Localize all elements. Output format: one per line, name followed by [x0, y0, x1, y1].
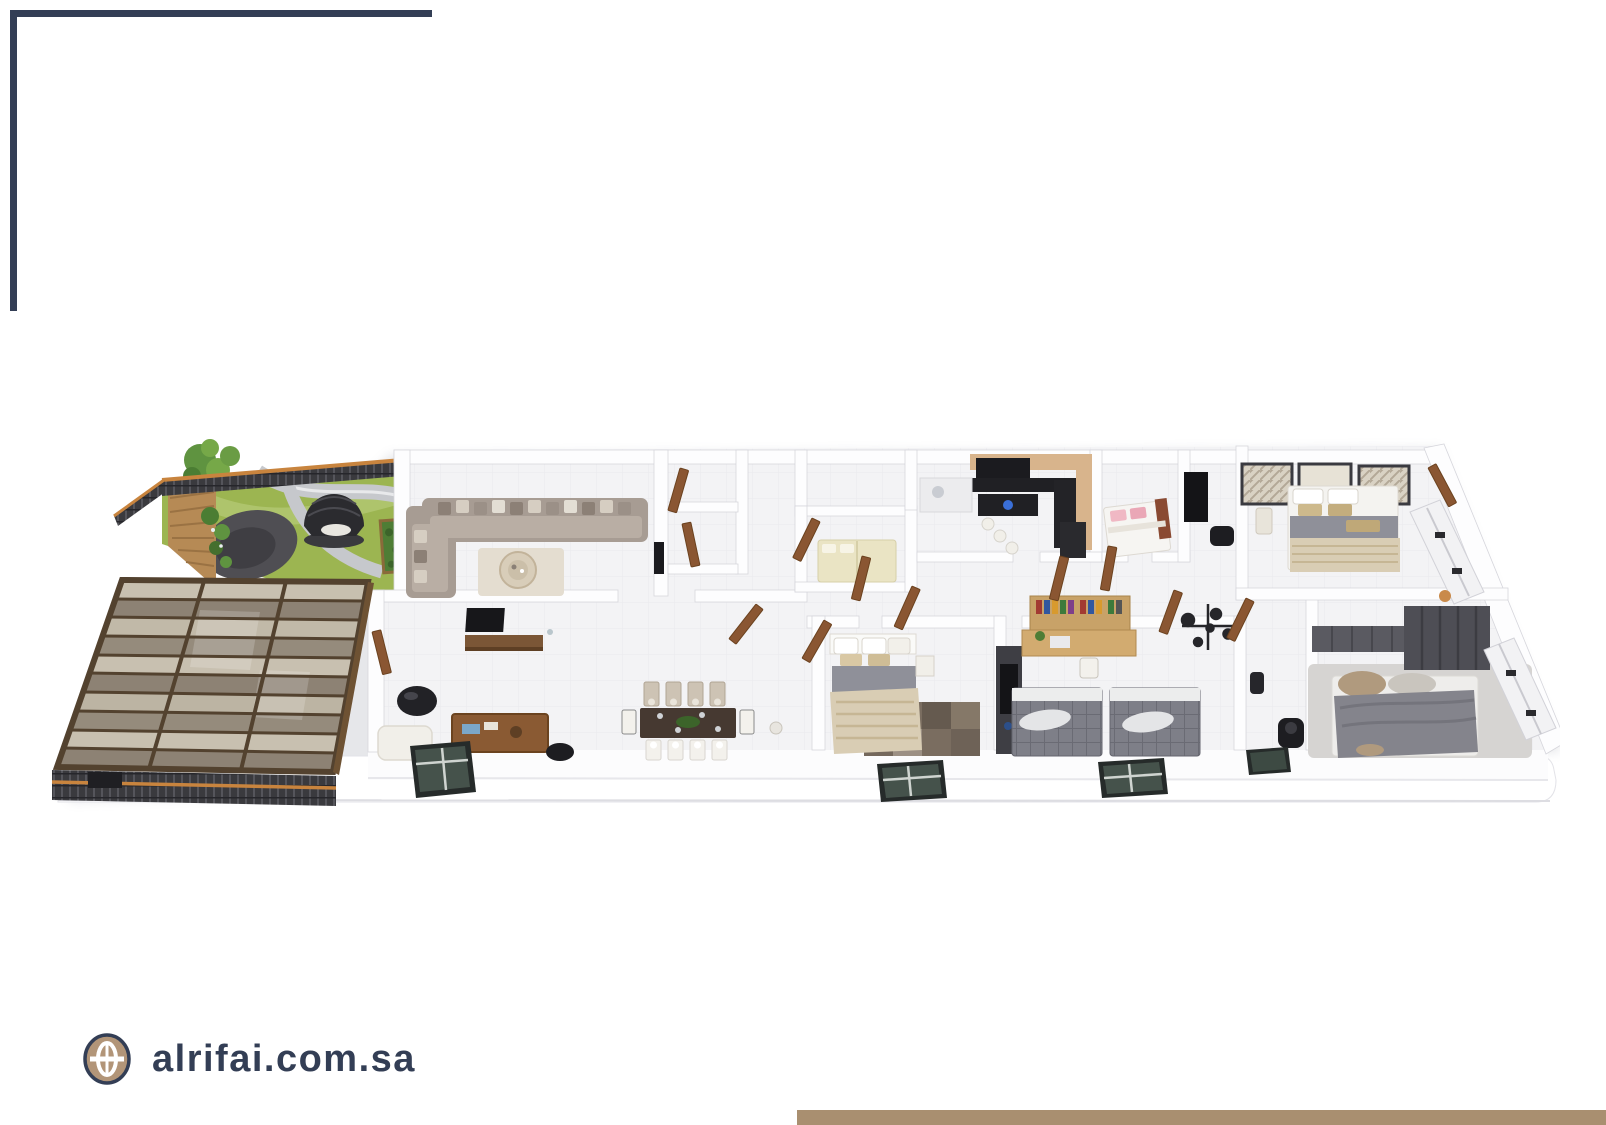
window-living — [410, 741, 476, 798]
floor-vase — [770, 722, 782, 734]
range-hood — [976, 458, 1030, 480]
globe-icon — [82, 1033, 132, 1085]
master-bed — [1288, 486, 1400, 572]
bidet — [1250, 672, 1264, 694]
corner-bracket-vertical — [10, 10, 17, 311]
desk-laptop — [1050, 636, 1070, 648]
window-twin-room — [1098, 758, 1168, 798]
bean-bag — [397, 686, 437, 716]
terrace-fence — [52, 770, 336, 806]
pergola-canopy — [52, 580, 374, 806]
page: alrifai.com.sa — [0, 0, 1606, 1125]
majlis-tv — [654, 542, 664, 574]
bar-stool — [982, 518, 994, 530]
sink-counter — [920, 478, 972, 512]
nightstand — [916, 656, 934, 676]
twin-bed-2 — [1110, 688, 1200, 756]
shag-pillow — [1338, 671, 1386, 697]
gray-bed — [1332, 671, 1478, 758]
desk-chair — [1080, 658, 1098, 678]
end-chair-right — [740, 710, 754, 734]
end-chair-left — [622, 710, 636, 734]
black-pouf — [546, 743, 574, 761]
bar-stool — [994, 530, 1006, 542]
window-small — [1246, 747, 1291, 775]
floorplan-3d-render — [50, 420, 1560, 820]
fridge — [1060, 522, 1086, 558]
footer-brand: alrifai.com.sa — [82, 1032, 416, 1086]
bar-stool — [1006, 542, 1018, 554]
sink — [932, 486, 944, 498]
nook-tv-panel — [1184, 472, 1208, 522]
window-bedroom-center — [877, 760, 947, 802]
nook-pouf — [1210, 526, 1234, 546]
footer-accent-bar — [797, 1110, 1606, 1125]
center-bed — [830, 634, 922, 754]
round-coffee-table — [500, 552, 536, 588]
dresser-decor — [1004, 722, 1012, 730]
desk-plant — [1035, 631, 1045, 641]
corner-bracket-horizontal — [10, 10, 432, 17]
website-url: alrifai.com.sa — [152, 1038, 416, 1081]
kitchen-island — [978, 494, 1038, 516]
bean-bag-highlight — [404, 692, 418, 700]
fence-gate — [88, 772, 122, 788]
twin-bed-1 — [1012, 688, 1102, 756]
bench — [1256, 508, 1272, 534]
gold-pouf — [1439, 590, 1451, 602]
